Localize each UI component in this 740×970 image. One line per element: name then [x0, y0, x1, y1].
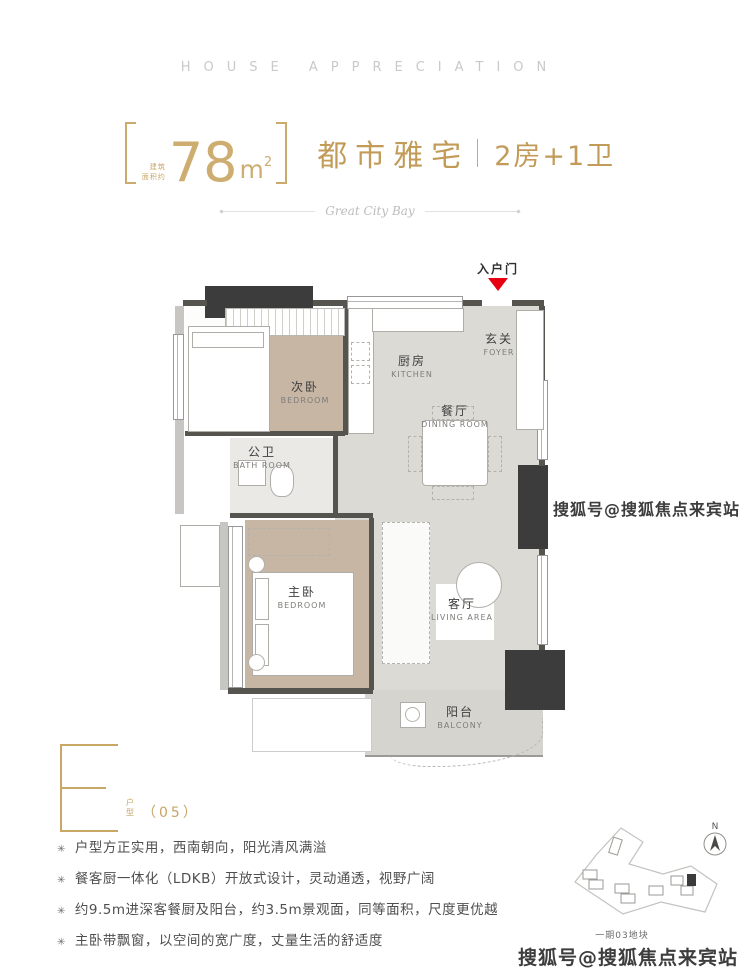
living-en: LIVING AREA	[431, 613, 493, 622]
wall-top-2	[313, 300, 347, 306]
area-note-bottom: 面积约	[142, 173, 166, 182]
unit-type-cn-2: 型	[126, 808, 135, 818]
feature-text: 主卧带飘窗，以空间的宽广度，丈量生活的舒适度	[75, 933, 383, 949]
bedroom2-cn: 次卧	[281, 378, 330, 395]
feature-item: ✳户型方正实用，西南朝向，阳光清风满溢	[57, 840, 577, 858]
foyer-en: FOYER	[484, 348, 515, 357]
unit-type-label: 户 型	[126, 798, 135, 819]
nightstand-2	[248, 654, 265, 671]
room-label-balcony: 阳台 BALCONY	[437, 703, 482, 730]
headline: 建筑 面积约 78 m2 都市雅宅 2房+1卫	[0, 118, 740, 188]
kicker-text: HOUSE APPRECIATION	[0, 60, 740, 75]
floor-plan: 入户门 玄关 FOYER 厨房 KITCHEN 餐厅 DINING ROOM 次…	[160, 250, 560, 780]
wardrobe-master	[248, 528, 330, 556]
ribbon-dot-right	[516, 209, 520, 213]
headline-title: 都市雅宅	[317, 131, 469, 175]
compass-n-label: N	[712, 822, 719, 832]
dining-cn: 餐厅	[421, 402, 489, 419]
feature-text: 餐客厨一体化（LDKB）开放式设计，灵动通透，视野广阔	[75, 871, 435, 887]
compass-icon: N	[704, 822, 726, 855]
wall-master-living	[369, 518, 374, 690]
area-unit-base: m	[240, 155, 264, 184]
pillow-bedroom2	[192, 332, 264, 348]
asterisk-bullet-icon: ✳	[57, 873, 66, 889]
master-en: BEDROOM	[278, 601, 327, 610]
bay-window-master	[228, 526, 243, 688]
master-cn: 主卧	[278, 583, 327, 600]
area-note: 建筑 面积约	[142, 163, 166, 182]
asterisk-bullet-icon: ✳	[57, 842, 66, 858]
window-living-2	[537, 555, 548, 645]
site-map-caption: 一期03地块	[563, 928, 681, 941]
poster-page: HOUSE APPRECIATION 建筑 面积约 78 m2 都市雅宅 2房+…	[0, 0, 740, 970]
tv-cabinet	[382, 522, 430, 664]
headline-divider	[477, 139, 478, 167]
room-label-master: 主卧 BEDROOM	[278, 583, 327, 610]
bath-en: BATH ROOM	[233, 461, 291, 470]
wall-corner-block	[505, 650, 565, 710]
headline-spec: 2房+1卫	[494, 134, 615, 173]
room-label-living: 客厅 LIVING AREA	[431, 595, 493, 622]
kitchen-en: KITCHEN	[391, 370, 433, 379]
feature-text: 约9.5m进深客餐厨及阳台，约3.5m景观面，同等面积，尺度更优越	[75, 902, 498, 918]
watermark-mid: 搜狐号@搜狐焦点来宾站	[553, 496, 740, 520]
e-stroke-middle	[60, 787, 106, 789]
entry-arrow-icon	[488, 278, 508, 291]
wall-right-column	[518, 465, 548, 549]
ribbon-line-left	[223, 211, 315, 212]
room-label-kitchen: 厨房 KITCHEN	[391, 352, 433, 379]
balcony-en: BALCONY	[437, 721, 482, 730]
room-label-bath: 公卫 BATH ROOM	[233, 443, 291, 470]
feature-item: ✳餐客厨一体化（LDKB）开放式设计，灵动通透，视野广阔	[57, 871, 577, 889]
ac-platform	[180, 525, 220, 587]
ribbon-line-right	[425, 211, 517, 212]
wall-bath-right	[333, 433, 338, 516]
pillow-master-1	[255, 578, 269, 620]
nightstand-1	[248, 556, 265, 573]
asterisk-bullet-icon: ✳	[57, 935, 66, 951]
asterisk-bullet-icon: ✳	[57, 904, 66, 920]
bracket-left-icon	[125, 122, 136, 184]
script-ribbon: Great City Bay	[220, 204, 520, 218]
e-stroke-bottom	[60, 830, 118, 832]
e-stroke-top	[60, 744, 118, 746]
area-value: 78	[169, 138, 238, 188]
wall-master-bottom	[228, 688, 373, 694]
wall-bath-master	[230, 513, 373, 518]
kitchen-top-counter	[372, 308, 464, 332]
feature-item: ✳主卧带飘窗，以空间的宽广度，丈量生活的舒适度	[57, 933, 577, 951]
bath-cn: 公卫	[233, 443, 291, 460]
dining-chair-bottom	[432, 486, 474, 500]
room-label-foyer: 玄关 FOYER	[484, 330, 515, 357]
unit-letter-e: E 户 型 （05）	[60, 744, 220, 836]
feature-list: ✳户型方正实用，西南朝向，阳光清风满溢 ✳餐客厨一体化（LDKB）开放式设计，灵…	[57, 840, 577, 964]
living-cn: 客厅	[431, 595, 493, 612]
foyer-cabinet	[516, 310, 544, 430]
lower-terrace	[252, 698, 372, 752]
wall-top-1	[183, 300, 207, 306]
entry-label: 入户门	[477, 260, 519, 277]
dining-chair-right	[488, 436, 502, 472]
kitchen-cn: 厨房	[391, 352, 433, 369]
wall-left-poche-bath	[175, 436, 184, 514]
wall-top-3	[460, 300, 482, 306]
ribbon-dot-left	[219, 209, 223, 213]
unit-type-cn-1: 户	[126, 798, 135, 808]
room-label-bedroom2: 次卧 BEDROOM	[281, 378, 330, 405]
watermark-bottom: 搜狐号@搜狐焦点来宾站	[518, 943, 738, 970]
site-map: N	[563, 820, 740, 932]
feature-item: ✳约9.5m进深客餐厨及阳台，约3.5m景观面，同等面积，尺度更优越	[57, 902, 577, 920]
unit-number: （05）	[142, 802, 200, 822]
ribbon-script-text: Great City Bay	[315, 204, 424, 218]
wall-bay-outer	[220, 522, 228, 690]
dining-table	[422, 420, 488, 486]
bedroom2-en: BEDROOM	[281, 396, 330, 405]
feature-text: 户型方正实用，西南朝向，阳光清风满溢	[75, 840, 327, 856]
balcony-cn: 阳台	[437, 703, 482, 720]
foyer-cn: 玄关	[484, 330, 515, 347]
area-note-top: 建筑	[142, 163, 166, 172]
room-label-dining: 餐厅 DINING ROOM	[421, 402, 489, 429]
area-unit-sup: 2	[264, 155, 272, 170]
window-bedroom2	[173, 334, 184, 420]
dining-chair-left	[408, 436, 422, 472]
dining-en: DINING ROOM	[421, 420, 489, 429]
kitchen-stove	[351, 365, 370, 384]
kitchen-sink	[351, 342, 370, 361]
highlighted-building	[687, 874, 696, 886]
bracket-right-icon	[276, 122, 287, 184]
area-unit: m2	[240, 155, 273, 184]
